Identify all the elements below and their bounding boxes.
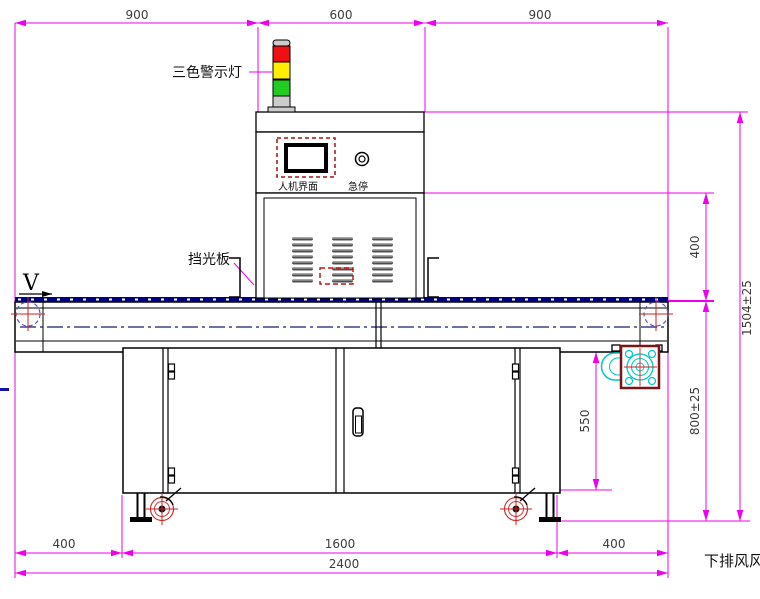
dim-text-top-right: 900 xyxy=(529,8,552,22)
conveyor xyxy=(11,297,673,352)
machine-elevation-drawing: 900 600 900 400 800±25 1504±25 550 400 1… xyxy=(0,0,760,599)
dim-text-right-800: 800±25 xyxy=(688,387,702,435)
dim-text-top-left: 900 xyxy=(126,8,149,22)
label-exhaust-note: 下排风风 xyxy=(704,552,760,570)
edge-centerline-mark xyxy=(0,388,9,391)
fan-motor-bracket-inner xyxy=(610,358,622,375)
dim-text-right-1504: 1504±25 xyxy=(740,280,754,336)
light-shield-right xyxy=(428,258,439,297)
leveling-foot-left-stem xyxy=(138,493,145,517)
tower-red-segment xyxy=(273,46,290,62)
label-warning-light: 三色警示灯 xyxy=(172,64,242,81)
leveling-foot-right-stem xyxy=(547,493,554,517)
tower-green-segment xyxy=(273,80,290,96)
head-vent-box-inner xyxy=(264,198,416,298)
machine-head xyxy=(229,112,439,298)
dim-text-550: 550 xyxy=(578,410,592,433)
fan-motor-bracket xyxy=(602,353,622,380)
label-light-shield: 挡光板 xyxy=(188,252,230,268)
tower-yellow-segment xyxy=(273,62,290,79)
dim-text-bottom-left: 400 xyxy=(53,537,76,551)
label-estop: 急停 xyxy=(348,180,368,193)
dim-text-bottom-overall: 2400 xyxy=(329,557,360,571)
label-belt-direction: V xyxy=(22,271,40,296)
dim-text-right-400: 400 xyxy=(688,236,702,259)
tower-cap xyxy=(273,40,290,46)
door-handle-grip xyxy=(356,416,362,433)
dim-text-top-mid: 600 xyxy=(330,8,353,22)
leader-light-shield xyxy=(234,263,254,285)
cabinet-body xyxy=(123,348,560,493)
dim-text-bottom-mid: 1600 xyxy=(325,537,356,551)
tower-base-plate xyxy=(268,107,295,112)
leveling-foot-right-pad xyxy=(539,517,561,522)
warning-light-tower xyxy=(268,40,295,112)
cabinet xyxy=(123,348,560,493)
head-top-box xyxy=(256,112,424,132)
tower-stem xyxy=(273,96,290,107)
leveling-foot-left-pad xyxy=(130,517,152,522)
cad-drawing-canvas: 900 600 900 400 800±25 1504±25 550 400 1… xyxy=(0,0,760,599)
dim-text-bottom-right: 400 xyxy=(603,537,626,551)
hmi-screen[interactable] xyxy=(286,145,326,171)
label-hmi: 人机界面 xyxy=(278,180,318,193)
